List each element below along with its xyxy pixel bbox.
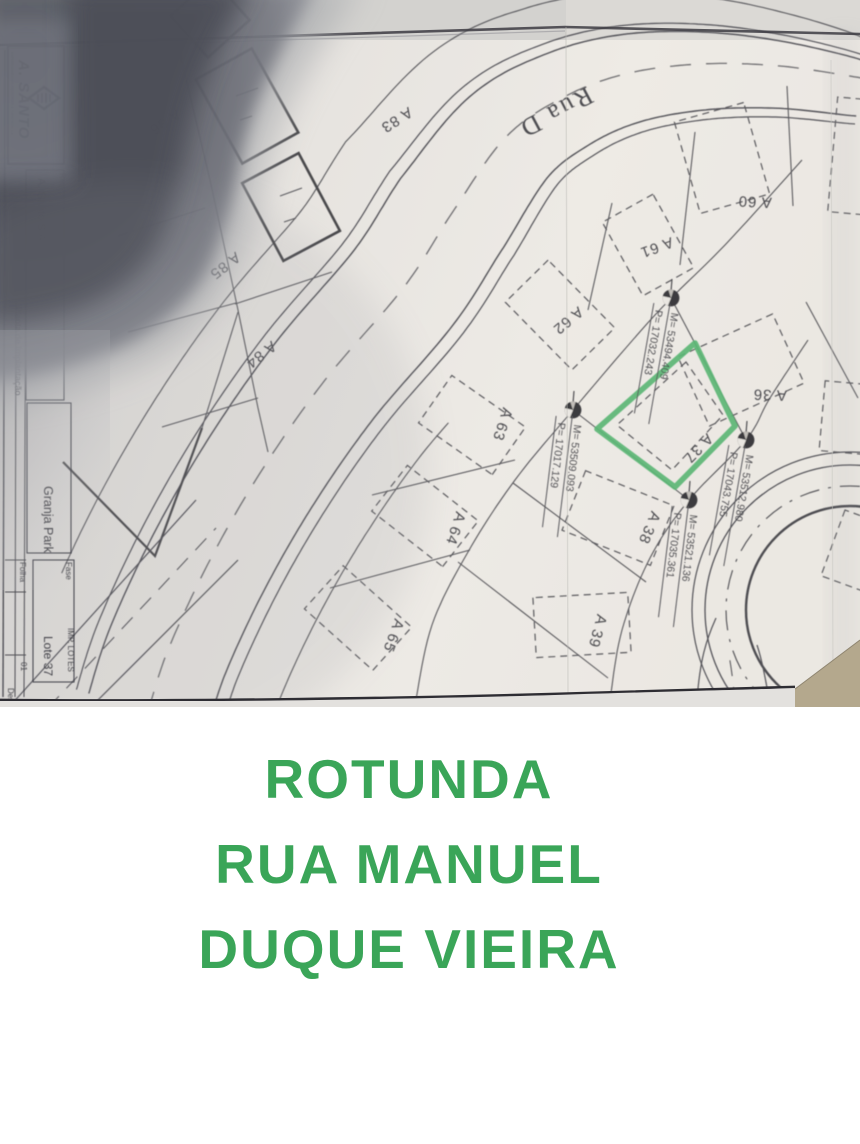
svg-text:A 36: A 36 xyxy=(753,385,788,403)
svg-text:A 60: A 60 xyxy=(737,192,772,211)
